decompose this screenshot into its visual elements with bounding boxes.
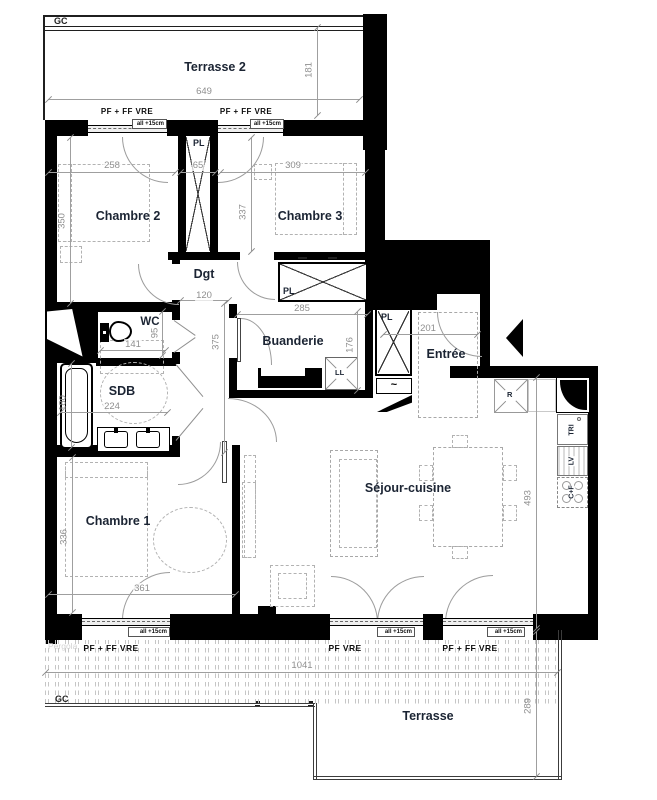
dim-terrasse2-width-line: [48, 99, 360, 100]
dim-hall-line: [224, 304, 225, 452]
door-swing-chambre1: [178, 442, 221, 485]
kitchen-counter-dash: [528, 379, 556, 412]
sdb-door-leaf-lower: [176, 408, 204, 441]
room-label-sdb: SDB: [109, 384, 135, 398]
wall-top-2: [167, 120, 218, 136]
window-sejour1-sill-label: all +15cm: [377, 627, 415, 637]
water-heater-squiggle: ~: [391, 379, 397, 391]
dim-chambre3-w-line: [220, 172, 366, 173]
wall-bottom-1: [45, 614, 82, 640]
dim-sdb-w-line: [60, 412, 168, 413]
dim-entree-line: [383, 334, 478, 335]
room-label-terrasse: Terrasse: [402, 709, 453, 723]
closet-pl2-label: PL: [283, 286, 295, 296]
room-label-sejour: Séjour-cuisine: [365, 481, 451, 495]
buanderie-door-leaf: [237, 318, 241, 362]
wall-pl1-left: [178, 136, 186, 254]
terrace2-rail-top: [43, 15, 363, 17]
terrace-rail-right: [558, 630, 562, 780]
dim-pl1-line: [180, 172, 216, 173]
bed-chambre3-pillow: [343, 163, 357, 235]
wall-buanderie-south: [229, 390, 369, 398]
room-label-buanderie: Buanderie: [262, 334, 323, 348]
dim-buanderie-d: 176: [345, 337, 356, 353]
vanity-tap-left: [114, 428, 118, 433]
door-swing-chambre3: [237, 262, 275, 300]
dim-buanderie-d-line: [357, 312, 358, 390]
wall-chambre3-bottom: [274, 252, 368, 260]
door-swing-sejour-2: [445, 575, 493, 623]
wall-left: [45, 120, 57, 645]
terrace-rail-left-bottom: [45, 703, 315, 707]
dim-sdb-d: 180: [58, 395, 69, 411]
entry-door-opening: [437, 294, 480, 310]
window-sejour-1: [330, 618, 423, 626]
floor-plan: GC Terrasse 2 649 181 all +15cm all +15c…: [0, 0, 657, 800]
dim-buanderie-w: 285: [293, 303, 311, 314]
sorting-knob: [577, 417, 581, 421]
window-chambre3-sill-label: all +15cm: [250, 119, 284, 129]
dim-wc-d-line: [162, 312, 163, 355]
dim-wc-w-line: [100, 350, 166, 351]
closet-pl2-slider-tick2: [328, 257, 337, 259]
door-swing-sejour-right: [377, 576, 424, 623]
cooktop-oven-label: C+F: [569, 485, 576, 498]
wall-top-3: [283, 120, 367, 136]
bed-chambre1-pillow: [65, 462, 148, 478]
wall-bottom-4: [533, 614, 598, 640]
chambre1-turning-circle: [153, 507, 227, 573]
sideboard-inner: [278, 573, 307, 599]
dim-terrasse2-depth: 181: [304, 62, 315, 78]
sofa-inner: [339, 459, 377, 548]
dining-table: [433, 447, 503, 547]
closet-pl1-cross: [186, 137, 210, 251]
wall-pl1-right: [210, 136, 218, 254]
window-sejour2-sill-label: all +15cm: [487, 627, 525, 637]
chair-right-2: [503, 505, 517, 521]
wall-hall-left-a: [172, 312, 180, 320]
dim-dgt: 120: [195, 290, 213, 301]
closet-pl2-slider-tick1: [298, 257, 307, 259]
window-chambre1-sill-label: all +15cm: [128, 627, 170, 637]
wall-bottom-3: [423, 614, 443, 640]
gc-label-bottom: GC: [55, 694, 69, 704]
room-label-chambre1: Chambre 1: [86, 514, 151, 528]
dim-terrasse2-width: 649: [195, 86, 213, 97]
wall-bottom-2: [170, 614, 330, 640]
nightstand-chambre2: [60, 246, 82, 263]
sdb-door-leaf-upper: [176, 364, 204, 397]
entry-arrow: [506, 319, 523, 357]
chair-right-1: [503, 465, 517, 481]
chair-top: [452, 435, 468, 448]
dim-terrasse-w: 1041: [290, 660, 313, 671]
dim-wc-w: 141: [124, 339, 142, 350]
fridge-label: R: [507, 390, 512, 399]
dim-hall: 375: [211, 334, 222, 350]
dim-chambre3-d: 337: [238, 204, 249, 220]
room-label-chambre2: Chambre 2: [96, 209, 161, 223]
dim-chambre1-w-line: [48, 594, 236, 595]
dim-sejour-d-line: [536, 378, 537, 628]
dim-chambre1-w: 361: [133, 583, 151, 594]
wall-buanderie-east: [365, 310, 373, 398]
window-chambre1-terrace: [82, 618, 170, 626]
window-chambre3-type: PF + FF VRE: [220, 107, 272, 116]
dim-wc-d: 95: [150, 328, 161, 339]
gc-label-top: GC: [54, 16, 68, 26]
wc-door-leaf-lower: [174, 337, 196, 353]
door-swing-sejour-left: [331, 576, 378, 623]
dim-pl1: 65: [192, 160, 205, 171]
room-label-chambre3: Chambre 3: [278, 209, 343, 223]
wall-buanderie-west-b: [229, 358, 237, 392]
dishwasher-label: LV: [569, 456, 576, 466]
door-swing-chambre1-balcony: [122, 572, 170, 620]
sorting-label: TRI: [569, 424, 576, 435]
dim-chambre2-d: 350: [57, 213, 68, 229]
window-sejour-2: [443, 618, 533, 626]
dim-terrasse2-depth-line: [317, 28, 318, 115]
room-label-terrasse2: Terrasse 2: [184, 60, 246, 74]
terrace2-rail-left: [43, 15, 45, 120]
washer-label: LL: [335, 368, 344, 377]
terrace-window-type-2: PF VRE: [328, 643, 361, 653]
room-label-entree: Entrée: [427, 347, 466, 361]
closet-pl1-label: PL: [193, 138, 205, 148]
wc-door-leaf-upper: [174, 320, 196, 336]
wardrobe-chambre1: [242, 482, 256, 558]
dim-sdb-d-line: [71, 364, 72, 447]
buanderie-counter-notch: [261, 368, 305, 376]
terrace-rail-step: [313, 703, 317, 780]
terrace-rail-bottom: [313, 776, 562, 780]
window-chambre2-type: PF + FF VRE: [101, 107, 153, 116]
vanity-basin-left: [104, 431, 128, 448]
wall-chambre3-right: [365, 136, 385, 246]
wall-chambre1-east: [232, 445, 240, 616]
dim-terrasse-d-line: [536, 632, 537, 776]
dim-chambre2-w: 258: [103, 160, 121, 171]
dim-entree: 201: [419, 323, 437, 334]
terrace-window-type-1: PF + FF VRE: [83, 643, 138, 653]
terrace2-rail-line2: [43, 26, 363, 27]
dim-chambre2-d-line: [70, 138, 71, 303]
toilet-tank-dot: [103, 331, 106, 334]
dim-chambre3-w: 309: [284, 160, 302, 171]
chair-left-2: [419, 505, 433, 521]
vanity-basin-right: [136, 431, 160, 448]
room-label-wc: WC: [140, 316, 159, 328]
dim-chambre2-w-line: [48, 172, 176, 173]
dim-sejour-d: 493: [523, 490, 534, 506]
door-swing-hall-sejour: [228, 398, 277, 442]
window-chambre2-sill-label: all +15cm: [132, 119, 167, 129]
entry-flap: [377, 395, 412, 412]
dim-buanderie-w-line: [237, 314, 368, 315]
pergola-label: Pergola: [48, 641, 77, 651]
chair-left-1: [419, 465, 433, 481]
vanity-tap-right: [146, 428, 150, 433]
dim-chambre1-d-line: [72, 458, 73, 612]
dim-sdb-w: 224: [103, 401, 121, 412]
wall-chambre2-right-a: [172, 252, 180, 264]
dim-chambre1-d: 336: [59, 529, 70, 545]
wall-bottom-notch: [258, 606, 276, 615]
chair-bottom: [452, 546, 468, 559]
terrace-window-type-3: PF + FF VRE: [442, 643, 497, 653]
water-heater-box: ~: [376, 378, 412, 394]
closet-pl3-label: PL: [381, 312, 393, 322]
dim-terrasse-d: 289: [523, 698, 534, 714]
room-label-dgt: Dgt: [194, 267, 215, 281]
door-swing-chambre2: [138, 264, 179, 305]
dim-chambre3-d-line: [251, 138, 252, 251]
dim-terrasse-w-line: [45, 672, 558, 673]
